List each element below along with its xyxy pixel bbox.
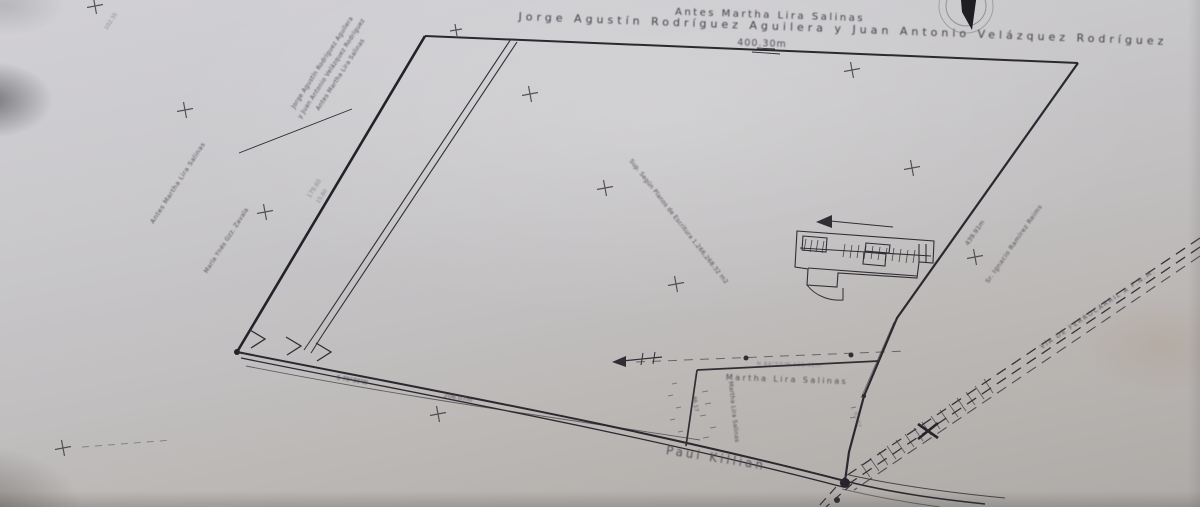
road-lines	[237, 352, 1005, 507]
building-hatch	[804, 239, 915, 263]
plan-linework	[0, 0, 1200, 507]
building-sketch	[795, 215, 934, 300]
survey-plan-photo: Antes Martha Lira Salinas Jorge Agustín …	[0, 0, 1200, 507]
label-top-dimension: 400.30m	[737, 38, 787, 49]
main-parcel-boundary	[234, 36, 1078, 481]
label-parcel-dim-left: 46.17	[690, 396, 698, 412]
survey-cross-marks	[55, 0, 983, 456]
railroad-crossing-mark	[918, 423, 938, 439]
misc-marks	[82, 48, 780, 447]
faint-dash-row	[82, 440, 172, 447]
building-leader-arrow	[816, 215, 832, 228]
